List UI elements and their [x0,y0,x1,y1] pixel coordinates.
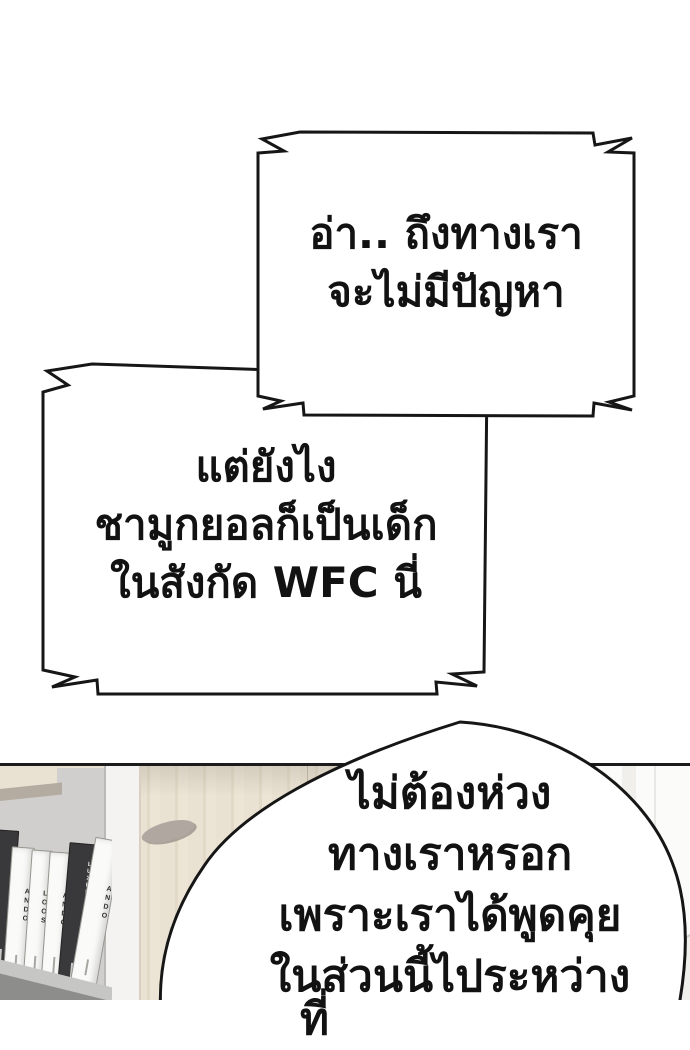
comic-page: { "bubble1": { "lines": ["อ่า.. ถึงทางเร… [0,0,690,1000]
bubble2-line3: ในสังกัด WFC นี่ [45,554,487,612]
bubble2-text: แต่ยังไง ชามูกยอลก็เป็นเด็ก ในสังกัด WFC… [45,438,487,612]
book-subtitle-mark [52,957,55,973]
bubble3-partial-line: ที่ [300,989,500,1050]
bubble1-line1: อ่า.. ถึงทางเรา [258,205,634,263]
bubble1-line2: จะไม่มีปัญหา [258,263,634,321]
bubble3-line1: ไม่ต้องห่วง [245,763,655,824]
book-subtitle-mark [84,959,89,975]
bubble2-line1: แต่ยังไง [45,438,487,496]
bubble3-line3: เพราะเราได้พูดคุย [245,885,655,946]
bubble3-line2: ทางเราหรอก [245,824,655,885]
bubble1-text: อ่า.. ถึงทางเรา จะไม่มีปัญหา [258,205,634,321]
bookshelf-alcove: LUXURY H ANDO LOOS ANDO LUXURY HOUSES AN… [0,766,112,1000]
bubble2-line2: ชามูกยอลก็เป็นเด็ก [45,496,487,554]
bubble3-text: ไม่ต้องห่วง ทางเราหรอก เพราะเราได้พูดคุย… [245,763,655,1007]
